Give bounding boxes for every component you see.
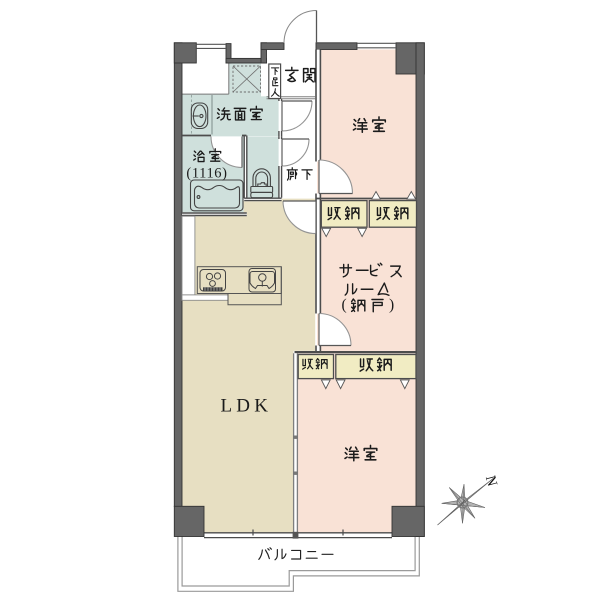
svg-text:): ): [389, 297, 394, 314]
svg-text:(1116): (1116): [186, 166, 227, 182]
svg-text:LDK: LDK: [221, 396, 273, 417]
svg-text:(: (: [342, 297, 347, 314]
